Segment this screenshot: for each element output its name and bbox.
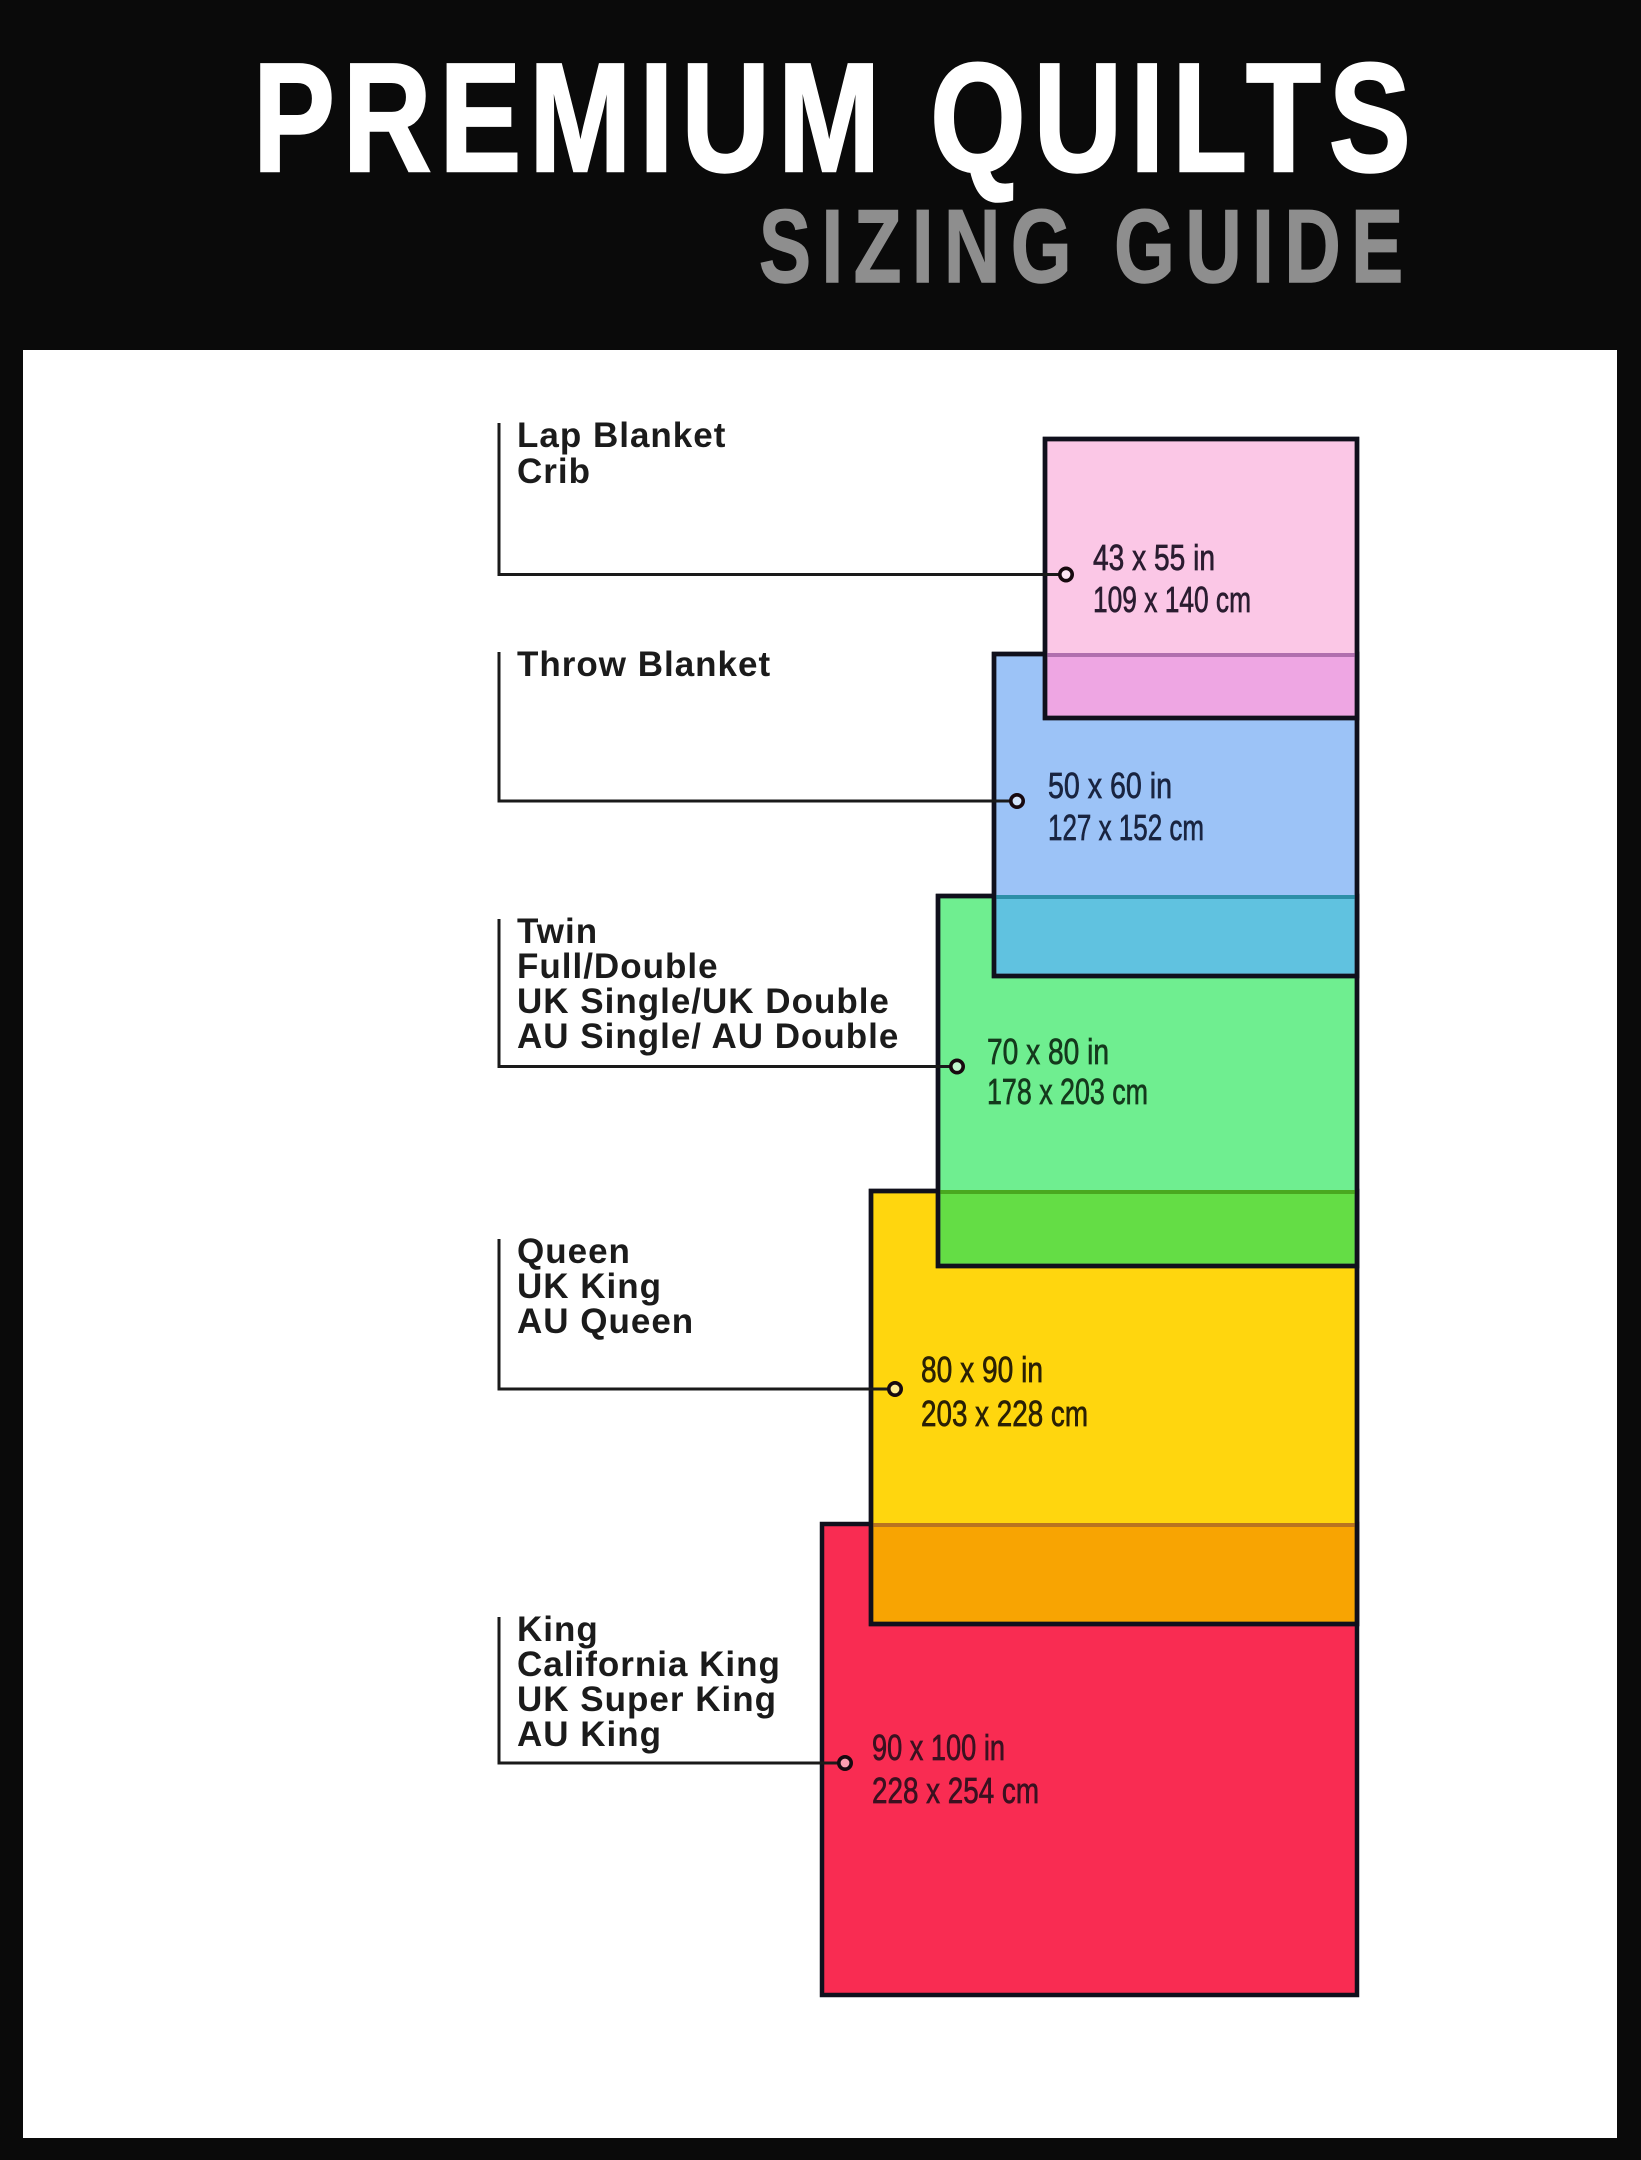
svg-text:127 x 152 cm: 127 x 152 cm bbox=[1048, 807, 1204, 848]
svg-text:AU Single/ AU Double: AU Single/ AU Double bbox=[517, 1017, 899, 1056]
svg-text:Crib: Crib bbox=[517, 452, 591, 491]
svg-text:AU Queen: AU Queen bbox=[517, 1302, 694, 1341]
svg-text:California King: California King bbox=[517, 1645, 781, 1684]
svg-text:AU King: AU King bbox=[517, 1715, 662, 1754]
svg-text:228 x 254 cm: 228 x 254 cm bbox=[872, 1770, 1039, 1811]
svg-text:UK King: UK King bbox=[517, 1267, 662, 1306]
svg-text:178 x 203 cm: 178 x 203 cm bbox=[987, 1071, 1148, 1112]
svg-text:109 x 140 cm: 109 x 140 cm bbox=[1093, 579, 1251, 620]
svg-text:Queen: Queen bbox=[517, 1232, 631, 1271]
svg-text:UK Super King: UK Super King bbox=[517, 1680, 777, 1719]
svg-text:Full/Double: Full/Double bbox=[517, 947, 719, 986]
svg-text:UK Single/UK Double: UK Single/UK Double bbox=[517, 982, 890, 1021]
svg-text:50 x 60 in: 50 x 60 in bbox=[1048, 765, 1172, 806]
svg-text:90 x 100 in: 90 x 100 in bbox=[872, 1727, 1005, 1768]
svg-text:70 x 80 in: 70 x 80 in bbox=[987, 1031, 1109, 1072]
svg-text:203 x 228 cm: 203 x 228 cm bbox=[921, 1393, 1088, 1434]
svg-text:Throw Blanket: Throw Blanket bbox=[517, 645, 771, 684]
svg-text:King: King bbox=[517, 1610, 599, 1649]
svg-text:Twin: Twin bbox=[517, 912, 598, 951]
svg-text:43 x 55 in: 43 x 55 in bbox=[1093, 537, 1215, 578]
svg-text:Lap Blanket: Lap Blanket bbox=[517, 416, 726, 455]
svg-text:80 x 90 in: 80 x 90 in bbox=[921, 1349, 1043, 1390]
